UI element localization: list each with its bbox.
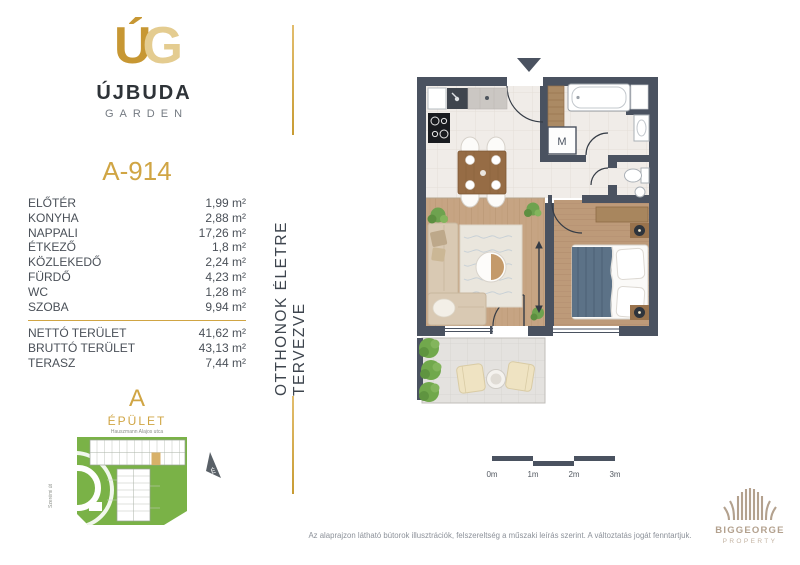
room-area: 4,23 m² [205, 270, 246, 285]
room-area: 2,24 m² [205, 255, 246, 270]
wc-hand-basin [635, 187, 645, 197]
area-row: WC1,28 m² [28, 285, 246, 300]
street-label-left: Szerémi út [48, 483, 54, 508]
room-area: 2,88 m² [205, 211, 246, 226]
terrace-table [487, 370, 506, 389]
room-area: 9,94 m² [205, 300, 246, 315]
site-map: Hauszmann Alajos utca Szerémi út É [45, 424, 235, 532]
brand-logo: ÚG ÚJBUDA GARDEN [86, 16, 202, 120]
coffee-table [476, 252, 506, 282]
room-label: SZOBA [28, 300, 69, 315]
scale-label-1: 1m [527, 470, 538, 479]
terrace-chair-left [456, 363, 486, 393]
room-label: BRUTTÓ TERÜLET [28, 341, 135, 356]
building-heading: A ÉPÜLET [28, 385, 246, 428]
divider-line-bottom [292, 396, 294, 494]
room-label: KONYHA [28, 211, 79, 226]
area-row: NAPPALI17,26 m² [28, 226, 246, 241]
nightstand-top [630, 223, 649, 238]
bathroom-sink [634, 115, 649, 141]
scale-bar: 0m 1m 2m 3m [486, 451, 620, 481]
floorplan-sheet: ÚG ÚJBUDA GARDEN A-914 ELŐTÉR1,99 m²KONY… [0, 0, 800, 565]
living-room-window [441, 326, 493, 334]
bedroom-desk [596, 207, 648, 222]
room-area: 7,44 m² [205, 356, 246, 371]
area-row: ÉTKEZŐ1,8 m² [28, 240, 246, 255]
room-area: 1,28 m² [205, 285, 246, 300]
scale-label-2: 2m [568, 470, 579, 479]
publisher-division: PROPERTY [723, 538, 778, 545]
table-divider [28, 320, 246, 321]
room-area: 41,62 m² [199, 326, 246, 341]
brand-name: ÚJBUDA [86, 82, 202, 105]
building-letter: A [28, 385, 246, 413]
room-label: FÜRDŐ [28, 270, 71, 285]
room-area: 17,26 m² [199, 226, 246, 241]
compass-north-icon: É [206, 452, 221, 478]
washing-machine-label: M [557, 136, 566, 148]
bathtub [568, 84, 630, 111]
room-label: TERASZ [28, 356, 75, 371]
terrace-plants [419, 338, 442, 402]
room-area: 1,99 m² [205, 196, 246, 211]
wardrobe [548, 86, 564, 128]
area-row: ELŐTÉR1,99 m² [28, 196, 246, 211]
street-label-top: Hauszmann Alajos utca [111, 429, 163, 435]
room-label: NAPPALI [28, 226, 78, 241]
room-label: WC [28, 285, 48, 300]
disclaimer-text: Az alaprajzon látható bútorok illusztrác… [285, 531, 715, 540]
toilet [625, 168, 650, 183]
room-label: NETTÓ TERÜLET [28, 326, 126, 341]
stove [428, 113, 450, 143]
area-row: KÖZLEKEDŐ2,24 m² [28, 255, 246, 270]
area-row: SZOBA9,94 m² [28, 300, 246, 315]
room-table: ELŐTÉR1,99 m²KONYHA2,88 m²NAPPALI17,26 m… [28, 196, 246, 314]
scale-label-0: 0m [486, 470, 497, 479]
room-area: 43,13 m² [199, 341, 246, 356]
area-row: TERASZ7,44 m² [28, 356, 246, 371]
scale-label-3: 3m [609, 470, 620, 479]
publisher-logo-icon [724, 488, 776, 520]
nightstand-bottom [630, 305, 649, 320]
publisher-logo: BIGGEORGE PROPERTY [706, 476, 794, 552]
fridge [428, 88, 446, 109]
area-row: NETTÓ TERÜLET41,62 m² [28, 326, 246, 341]
entrance-arrow-icon [517, 58, 541, 72]
area-row: FÜRDŐ4,23 m² [28, 270, 246, 285]
pillow [616, 248, 645, 280]
monogram-letter-g: G [143, 17, 174, 75]
monogram-letter-u: Ú [114, 17, 143, 75]
terrace-chair-right [505, 361, 535, 392]
tagline: OTTHONOK ÉLETRE TERVEZVE [277, 138, 305, 396]
unit-panel: A-914 ELŐTÉR1,99 m²KONYHA2,88 m²NAPPALI1… [28, 156, 246, 371]
area-row: BRUTTÓ TERÜLET43,13 m² [28, 341, 246, 356]
totals-table: NETTÓ TERÜLET41,62 m²BRUTTÓ TERÜLET43,13… [28, 326, 246, 370]
room-label: ELŐTÉR [28, 196, 76, 211]
floor-plan: M [400, 55, 665, 410]
site-map-building-a [90, 440, 185, 465]
divider-line-top [292, 25, 294, 135]
shaft-niche [631, 85, 648, 109]
brand-monogram-icon: ÚG [86, 16, 202, 80]
room-label: KÖZLEKEDŐ [28, 255, 101, 270]
room-label: ÉTKEZŐ [28, 240, 76, 255]
room-area: 1,8 m² [212, 240, 246, 255]
publisher-name: BIGGEORGE [715, 525, 784, 536]
washing-machine: M [548, 127, 576, 154]
throw-blanket [433, 299, 455, 317]
highlighted-unit [152, 453, 161, 466]
bedroom-window [550, 326, 622, 336]
area-row: KONYHA2,88 m² [28, 211, 246, 226]
unit-id: A-914 [28, 156, 246, 187]
brand-subtitle: GARDEN [86, 108, 202, 120]
